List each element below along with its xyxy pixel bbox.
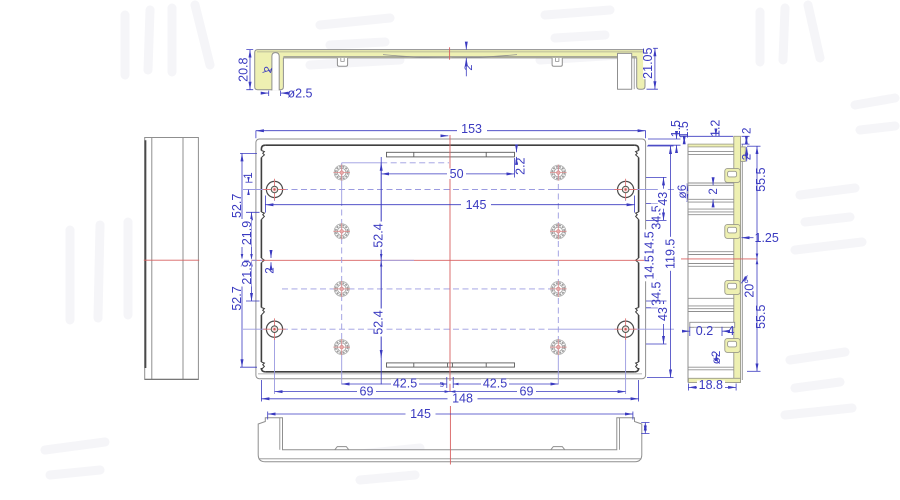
svg-text:0.2: 0.2 bbox=[696, 324, 713, 338]
svg-text:2: 2 bbox=[742, 154, 754, 160]
svg-text:43: 43 bbox=[656, 192, 670, 206]
svg-text:1: 1 bbox=[243, 172, 255, 178]
svg-text:14.5: 14.5 bbox=[643, 255, 657, 279]
svg-text:34.5: 34.5 bbox=[649, 281, 663, 305]
svg-text:1.25: 1.25 bbox=[755, 231, 779, 245]
svg-text:148: 148 bbox=[452, 392, 473, 406]
svg-text:145: 145 bbox=[410, 407, 431, 421]
svg-text:21.9: 21.9 bbox=[240, 221, 254, 245]
svg-text:ø2: ø2 bbox=[711, 351, 723, 364]
svg-text:2: 2 bbox=[463, 64, 475, 70]
svg-text:69: 69 bbox=[360, 384, 374, 398]
svg-text:2.2: 2.2 bbox=[513, 157, 527, 174]
svg-text:ø2.5: ø2.5 bbox=[288, 87, 313, 101]
svg-text:2: 2 bbox=[708, 188, 720, 194]
svg-text:153: 153 bbox=[461, 122, 482, 136]
svg-text:21.05: 21.05 bbox=[641, 48, 655, 79]
svg-text:ø6: ø6 bbox=[675, 184, 689, 198]
svg-text:34.5: 34.5 bbox=[649, 205, 663, 229]
svg-text:1.5: 1.5 bbox=[677, 121, 691, 138]
svg-text:119.5: 119.5 bbox=[663, 239, 677, 269]
svg-text:20.8: 20.8 bbox=[237, 57, 251, 81]
svg-text:55.5: 55.5 bbox=[754, 304, 768, 328]
svg-text:5: 5 bbox=[440, 380, 444, 389]
svg-text:52.7: 52.7 bbox=[230, 286, 244, 310]
svg-text:42.5: 42.5 bbox=[393, 377, 417, 391]
svg-text:21.9: 21.9 bbox=[240, 260, 254, 284]
svg-text:42.5: 42.5 bbox=[483, 377, 507, 391]
svg-text:43: 43 bbox=[656, 307, 670, 321]
svg-text:1.2: 1.2 bbox=[709, 120, 723, 137]
svg-text:52.4: 52.4 bbox=[371, 223, 385, 247]
svg-text:18.8: 18.8 bbox=[699, 378, 723, 392]
svg-text:2: 2 bbox=[265, 267, 277, 273]
svg-text:145: 145 bbox=[466, 198, 487, 212]
svg-text:69: 69 bbox=[520, 384, 534, 398]
svg-text:4: 4 bbox=[728, 324, 735, 338]
svg-text:55.5: 55.5 bbox=[754, 167, 768, 191]
svg-text:20°: 20° bbox=[743, 279, 757, 298]
svg-text:14.5: 14.5 bbox=[643, 231, 657, 255]
svg-text:2: 2 bbox=[741, 128, 753, 134]
svg-text:52.4: 52.4 bbox=[371, 310, 385, 334]
svg-text:52.7: 52.7 bbox=[230, 194, 244, 218]
svg-text:50: 50 bbox=[450, 167, 464, 181]
